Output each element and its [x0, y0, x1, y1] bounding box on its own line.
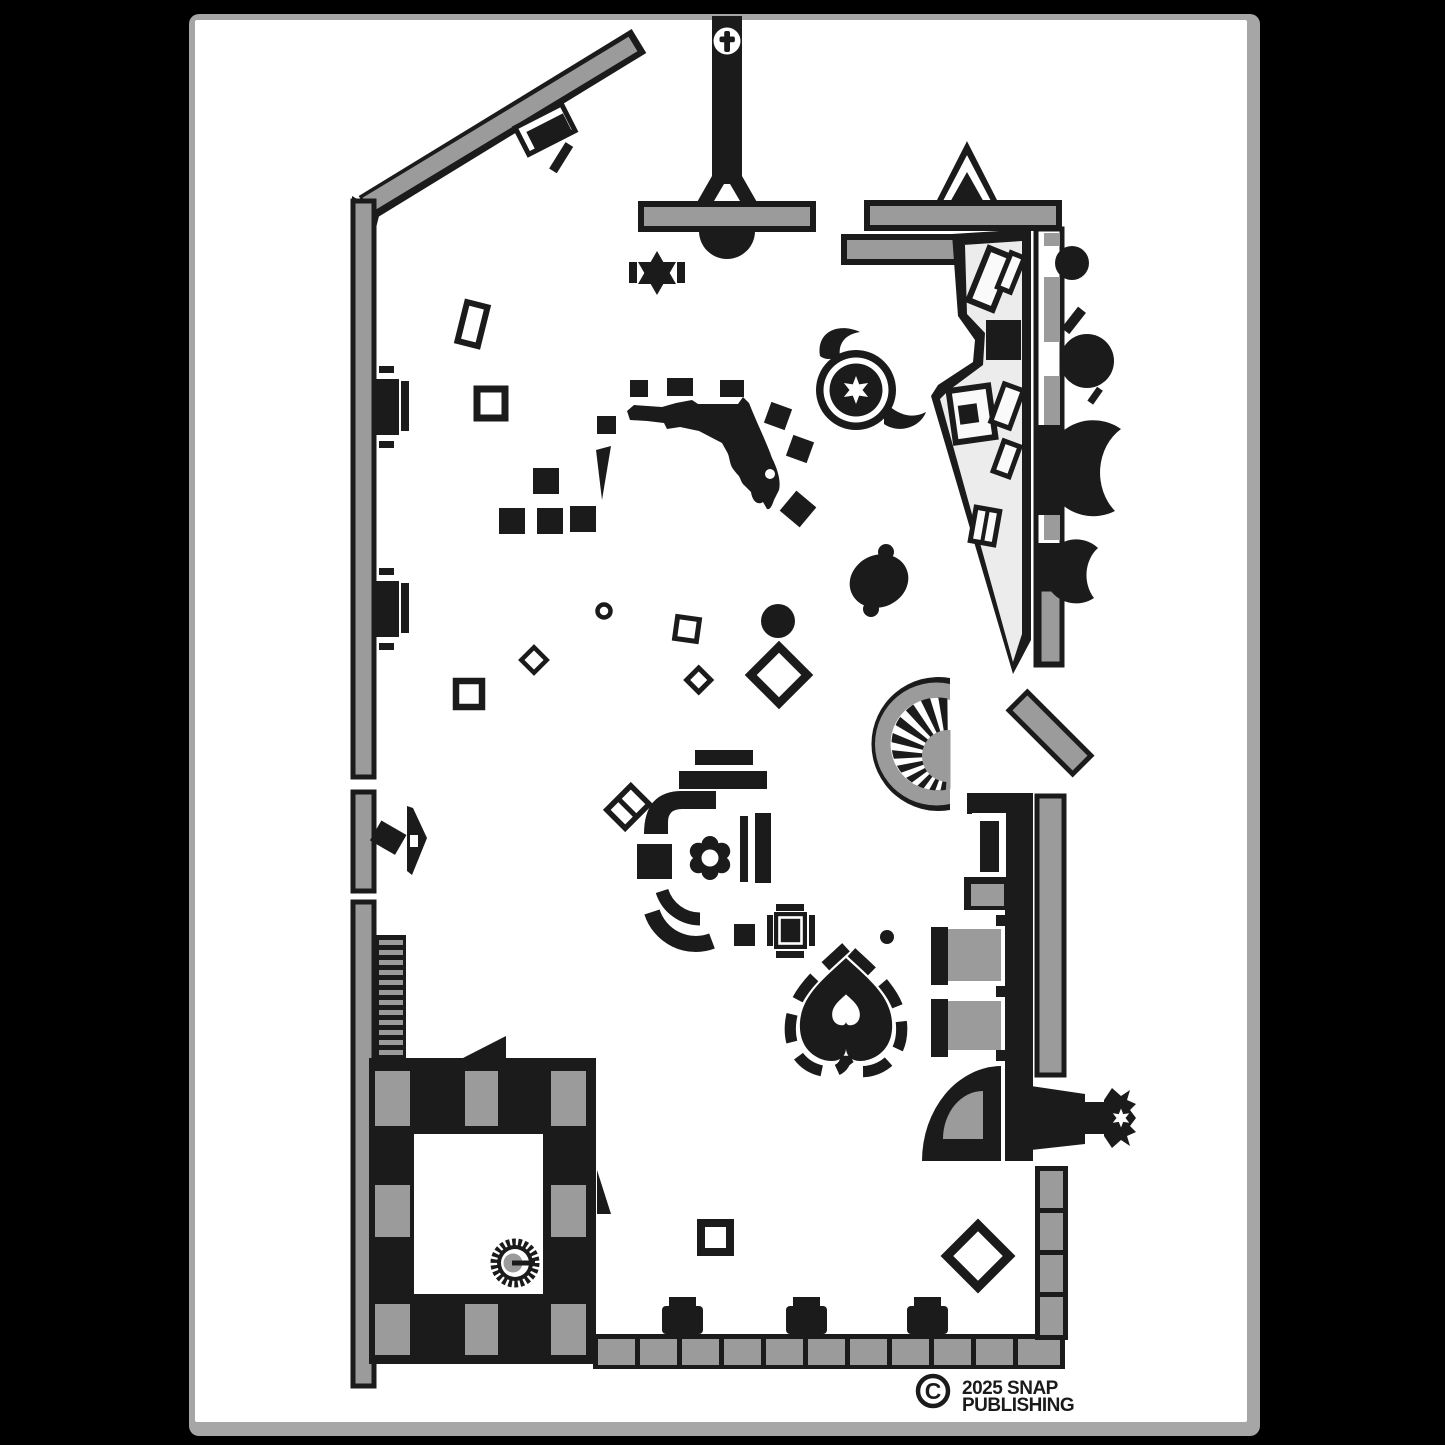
svg-text:PUBLISHING: PUBLISHING — [962, 1395, 1074, 1416]
svg-text:C: C — [925, 1378, 942, 1404]
